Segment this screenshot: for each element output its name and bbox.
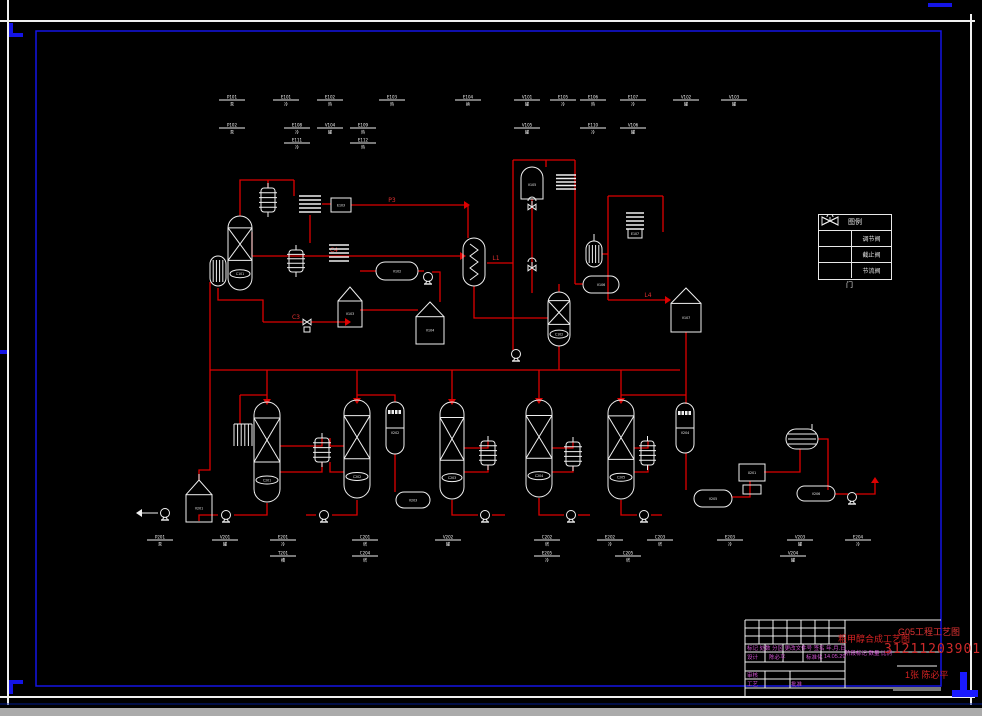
pipe [818,439,828,490]
tag-code: E202 [605,535,616,540]
tag-name: 换 [466,101,470,107]
pipe [764,449,800,472]
label: V105 [528,183,536,187]
equipment-tank-roof [416,302,444,317]
tag-name: 冷 [591,129,595,135]
titleblock-approve-label: 批准 [791,680,802,688]
tag-code: E107 [628,95,639,100]
label: V103 [346,312,354,316]
flow-arrow [665,296,671,304]
tag-code: E109 [358,123,369,128]
titleblock-date: 14.05.29 [824,654,845,660]
pipe-label: C3 [292,314,300,321]
tag-name: 罐 [223,541,227,547]
tag-name: 热 [328,101,332,107]
equipment-coil-exchanger [463,238,485,286]
tag-name: 罐 [525,129,529,135]
tag-name: 冷 [728,541,732,547]
equipment-tank-roof [186,480,212,495]
tag-name: 冷 [295,144,299,150]
equipment-tank-roof [338,287,362,301]
tag-code: V106 [628,123,639,128]
tag-name: 罐 [684,101,688,107]
tag-code: E111 [292,138,303,143]
label: C202 [353,475,361,479]
tag-code: C201 [360,535,371,540]
pump [424,273,433,282]
pump [481,511,490,520]
valve-tag-box [304,327,310,332]
tag-code: E205 [542,551,553,556]
legend-row: 节流阀 [819,263,891,278]
tag-code: E204 [853,535,864,540]
equipment-column [344,400,370,498]
tag-code: E108 [292,123,303,128]
tag-code: V202 [443,535,454,540]
pipe [432,272,440,302]
label: X201 [748,471,756,475]
valve [303,319,311,325]
equipment-tube-bundle [586,241,602,267]
equipment-column [440,402,464,499]
legend-row: 截止阀 [819,247,891,263]
equipment-tank-roof [671,288,701,303]
cad-canvas: C4P3L1L4C3E103C101V102V103V104V105E107V1… [0,0,982,716]
label: C101 [236,272,244,276]
titleblock-check-label: 审核 [747,671,758,679]
tag-code: V201 [220,535,231,540]
checker-cell [399,410,402,414]
tag-code: C204 [360,551,371,556]
flow-arrow [535,398,543,404]
flow-arrow [871,477,879,483]
tag-code: V103 [729,95,740,100]
throttle-valve-icon [819,263,852,278]
pipe [621,500,637,515]
pipe [332,500,357,515]
sheet-info: 1张 陈必平 [905,668,949,681]
pipe [732,481,750,497]
label: V201 [195,506,203,510]
flow-arrow [353,398,361,404]
label: V202 [391,431,399,435]
flow-arrow [136,509,142,517]
pipe [199,282,210,480]
checker-cell [392,410,395,414]
tag-name: 热 [390,101,394,107]
corner-mark-bl [11,682,23,694]
equipment-tube-bundle [210,256,226,286]
tag-code: V101 [522,95,533,100]
tag-name: 塔 [545,541,549,547]
tag-name: 罐 [798,541,802,547]
tag-code: V105 [522,123,533,128]
tag-name: 罐 [525,101,529,107]
tag-code: E110 [588,123,599,128]
pipe [552,466,573,472]
label: C102 [555,333,563,337]
tag-code: E104 [463,95,474,100]
legend-valve-name: 截止阀 [852,247,891,262]
pipe [199,515,218,521]
control-valve-icon [819,231,852,246]
label: V205 [709,497,717,501]
tag-code: V204 [788,551,799,556]
equipment-machine-base [743,485,761,494]
tag-name: 冷 [281,541,285,547]
flow-arrow [464,201,470,209]
tag-code: P201 [155,535,166,540]
label: V107 [682,316,690,320]
pipe [330,462,344,472]
tag-name: 热 [361,144,365,150]
equipment-column [254,402,280,502]
project-name: G05工程工艺图 [898,625,960,638]
checker-cell [388,410,391,414]
pipe [474,286,548,318]
titleblock-design-label: 设计 [747,653,758,661]
pfd-svg: C4P3L1L4C3E103C101V102V103V104V105E107V1… [0,0,982,716]
corner-mark-tl [11,23,23,35]
tag-name: 罐 [631,129,635,135]
tag-name: 冷 [545,557,549,563]
label: C203 [448,476,456,480]
tag-code: V104 [325,123,336,128]
tag-code: V102 [681,95,692,100]
pump [848,493,857,502]
tag-name: 冷 [856,541,860,547]
tag-code: E106 [588,95,599,100]
pipe-label: L1 [492,255,499,262]
equipment-finned-exchanger [289,250,303,272]
label: E103 [337,204,345,208]
titleblock-std-label: 标准化 [806,653,823,661]
tag-name: 塔 [363,557,367,563]
tag-code: P101 [227,95,238,100]
top-trim-mark [928,3,952,7]
flow-arrow [345,318,351,326]
checker-cell [395,410,398,414]
valve-legend: 图例 调节阀截止阀节流阀 [818,214,892,280]
pump [222,511,231,520]
tag-name: 泵 [230,130,234,135]
inner-border [36,31,941,686]
pipe [539,498,564,515]
pipe [464,441,488,448]
checker-cell [685,411,688,415]
tag-code: C205 [623,551,634,556]
tag-name: 冷 [608,541,612,547]
tag-code: E102 [325,95,336,100]
label: C205 [617,476,625,480]
tag-code: E103 [387,95,398,100]
tag-code: E101 [281,95,292,100]
drawing-number: 3121120390119 [884,642,982,657]
tag-name: 塔 [363,541,367,547]
tag-code: V203 [795,535,806,540]
label: V102 [393,270,401,274]
titleblock-craft-label: 工艺 [747,680,758,688]
tag-name: 泵 [230,102,234,107]
pump [640,511,649,520]
pump [512,350,521,359]
label: E107 [631,232,639,236]
label: C201 [263,479,271,483]
tag-name: 罐 [328,129,332,135]
tag-name: 罐 [791,557,795,563]
pipe [280,462,322,472]
pump [567,511,576,520]
label: V206 [812,492,820,496]
label: V104 [426,328,434,332]
titleblock-rev-row: 标记 处数 分区 更改文件号 签名 年.月.日 [747,644,846,652]
checker-cell [678,411,681,415]
tag-name: 热 [361,129,365,135]
pump [161,509,170,518]
legend-valve-name: 调节阀 [852,231,891,246]
legend-caption: 门 [846,280,853,290]
pipe [634,465,648,472]
titleblock-designer: 陈必平 [769,653,786,661]
label: V106 [597,283,605,287]
checker-cell [689,411,692,415]
flow-arrow [617,398,625,404]
tag-code: T201 [277,551,289,556]
tag-name: 槽 [281,557,285,563]
tag-name: 塔 [658,541,662,547]
fold-arrow-mark [952,672,978,697]
pipe [351,205,468,238]
screen-bottom-strip [0,708,982,716]
tag-code: C203 [655,535,666,540]
label: C204 [535,474,543,478]
equipment-column [228,216,252,290]
pipe [464,465,488,472]
tag-code: E203 [725,535,736,540]
tag-name: 罐 [446,541,450,547]
left-trim-mark [0,350,7,354]
equipment-column [526,400,552,497]
equipment-column [608,400,634,499]
pipe-label: L4 [644,292,651,299]
zigzag-coil [470,244,478,280]
checker-cell [682,411,685,415]
tag-name: 冷 [631,101,635,107]
tag-name: 罐 [732,101,736,107]
label: V204 [681,431,689,435]
tag-name: 泵 [158,542,162,547]
tag-code: E105 [558,95,569,100]
stop-valve-icon [819,247,852,262]
tag-name: 冷 [561,101,565,107]
equipment-finned-exchanger [261,188,275,212]
label: V203 [409,499,417,503]
pump [320,511,329,520]
pipe [330,438,344,446]
tag-code: E201 [278,535,289,540]
tag-code: E112 [358,138,369,143]
pipe [218,288,263,322]
pipe [452,500,478,515]
tag-code: P102 [227,123,238,128]
tag-name: 冷 [295,129,299,135]
tag-code: C202 [542,535,553,540]
legend-row: 调节阀 [819,231,891,247]
pipe [234,503,267,515]
tag-name: 热 [591,101,595,107]
tag-name: 塔 [626,557,630,563]
tag-name: 冷 [284,101,288,107]
pipe-label: P3 [388,197,396,204]
legend-valve-name: 节流阀 [852,263,891,278]
